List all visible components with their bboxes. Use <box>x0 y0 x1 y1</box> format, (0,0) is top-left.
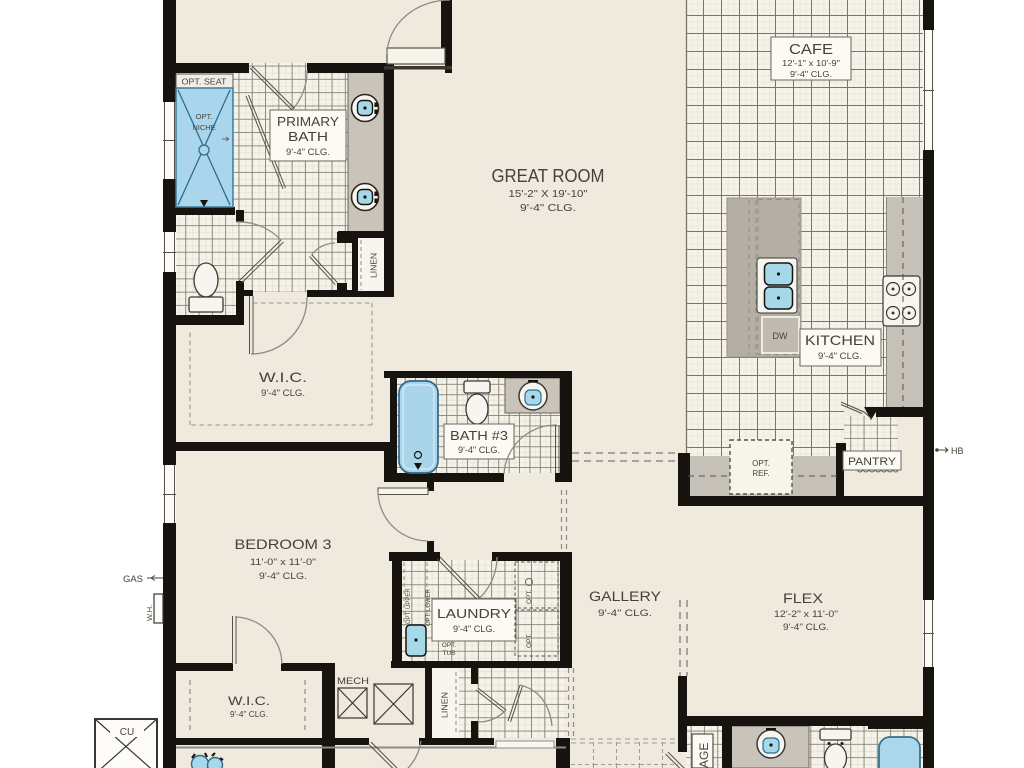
svg-text:CU: CU <box>120 727 134 738</box>
svg-text:OPT.: OPT. <box>526 589 533 604</box>
svg-text:NICHE: NICHE <box>192 123 215 132</box>
svg-text:OPT.: OPT. <box>752 459 770 468</box>
svg-text:11'-0" x 11'-0": 11'-0" x 11'-0" <box>250 557 316 568</box>
svg-text:12'-2" x 11'-0": 12'-2" x 11'-0" <box>774 609 838 620</box>
svg-text:9'-4" CLG.: 9'-4" CLG. <box>790 69 832 79</box>
svg-text:12'-1" x 10'-9": 12'-1" x 10'-9" <box>782 58 840 68</box>
svg-text:OPT. UPPER: OPT. UPPER <box>406 588 412 624</box>
svg-text:OPT. LOWER: OPT. LOWER <box>426 588 432 626</box>
svg-text:9'-4" CLG.: 9'-4" CLG. <box>261 388 305 398</box>
svg-text:LINEN: LINEN <box>441 692 450 718</box>
svg-text:LINEN: LINEN <box>370 253 379 278</box>
svg-text:BATH #3: BATH #3 <box>450 428 508 443</box>
svg-text:9'-4" CLG.: 9'-4" CLG. <box>818 351 862 361</box>
svg-text:9'-4" CLG.: 9'-4" CLG. <box>783 622 829 633</box>
svg-text:BEDROOM 3: BEDROOM 3 <box>235 536 332 552</box>
svg-text:OPT. SEAT: OPT. SEAT <box>182 78 227 87</box>
svg-text:PRIMARY: PRIMARY <box>277 114 339 129</box>
svg-text:TUB: TUB <box>443 650 456 657</box>
svg-text:KITCHEN: KITCHEN <box>805 332 875 348</box>
svg-text:GAS: GAS <box>123 574 143 584</box>
svg-text:OPT.: OPT. <box>526 633 533 648</box>
svg-text:PANTRY: PANTRY <box>848 456 897 468</box>
svg-text:REF.: REF. <box>752 469 769 478</box>
svg-text:W.I.C.: W.I.C. <box>259 369 307 385</box>
svg-text:9'-4" CLG.: 9'-4" CLG. <box>453 624 495 634</box>
svg-text:9'-4" CLG.: 9'-4" CLG. <box>520 202 576 214</box>
svg-text:FLEX: FLEX <box>783 591 823 606</box>
svg-text:W.H.: W.H. <box>145 605 154 621</box>
svg-text:GREAT ROOM: GREAT ROOM <box>492 166 605 186</box>
svg-text:LAUNDRY: LAUNDRY <box>437 606 511 621</box>
svg-text:15'-2" X 19'-10": 15'-2" X 19'-10" <box>509 188 588 200</box>
svg-text:GALLERY: GALLERY <box>589 589 661 604</box>
svg-text:W.I.C.: W.I.C. <box>228 694 270 708</box>
svg-text:GARAGE: GARAGE <box>697 743 711 768</box>
svg-text:DW: DW <box>773 331 788 341</box>
svg-text:BATH: BATH <box>288 129 328 144</box>
svg-text:HB: HB <box>951 446 964 456</box>
svg-text:9'-4" CLG.: 9'-4" CLG. <box>458 445 500 455</box>
svg-text:9'-4" CLG.: 9'-4" CLG. <box>259 571 307 582</box>
svg-text:9'-4" CLG.: 9'-4" CLG. <box>230 710 268 719</box>
svg-text:MECH: MECH <box>337 676 369 687</box>
svg-text:9'-4" CLG.: 9'-4" CLG. <box>286 147 330 157</box>
svg-text:9'-4" CLG.: 9'-4" CLG. <box>598 608 652 619</box>
svg-text:OPT.: OPT. <box>442 642 457 649</box>
svg-text:OPT.: OPT. <box>196 112 213 121</box>
svg-text:CAFE: CAFE <box>789 41 833 58</box>
